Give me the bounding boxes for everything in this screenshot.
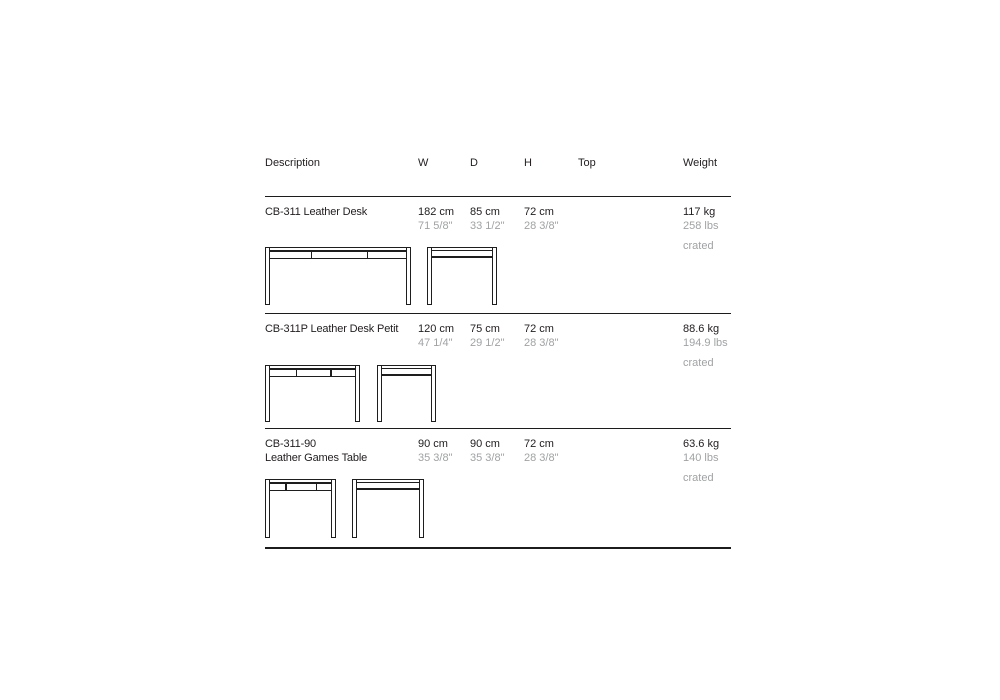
- apron-outline: [269, 250, 407, 259]
- product-name: CB-311P Leather Desk Petit: [265, 322, 398, 336]
- apron-outline: [269, 368, 356, 377]
- weight-kg-value: 88.6 kg: [683, 322, 719, 336]
- height-cm-value: 72 cm: [524, 205, 554, 219]
- height-in-value: 28 3/8": [524, 219, 559, 233]
- tabletop-outline: [352, 479, 424, 483]
- product-name-line2: Leather Games Table: [265, 451, 367, 465]
- shipping-label: crated: [683, 471, 714, 485]
- header-top: Top: [578, 156, 596, 170]
- height-cm-value: 72 cm: [524, 322, 554, 336]
- header-width: W: [418, 156, 428, 170]
- height-cm-value: 72 cm: [524, 437, 554, 451]
- table-row: CB-311P Leather Desk Petit 120 cm 47 1/4…: [265, 313, 731, 428]
- product-name: CB-311 Leather Desk: [265, 205, 367, 219]
- width-in-value: 35 3/8": [418, 451, 453, 465]
- height-in-value: 28 3/8": [524, 451, 559, 465]
- weight-lbs-value: 258 lbs: [683, 219, 718, 233]
- front-view-drawing: [265, 365, 360, 422]
- shipping-label: crated: [683, 356, 714, 370]
- weight-kg-value: 117 kg: [683, 205, 715, 219]
- apron-rail-line: [381, 374, 432, 376]
- depth-in-value: 29 1/2": [470, 336, 505, 350]
- depth-cm-value: 85 cm: [470, 205, 500, 219]
- width-cm-value: 182 cm: [418, 205, 454, 219]
- width-in-value: 71 5/8": [418, 219, 453, 233]
- header-description: Description: [265, 156, 320, 170]
- apron-rail-line: [356, 488, 420, 490]
- side-view-drawing: [377, 365, 436, 422]
- shipping-label: crated: [683, 239, 714, 253]
- table-row: CB-311 Leather Desk 182 cm 71 5/8" 85 cm…: [265, 196, 731, 313]
- header-height: H: [524, 156, 532, 170]
- width-in-value: 47 1/4": [418, 336, 453, 350]
- depth-in-value: 35 3/8": [470, 451, 505, 465]
- drawer-divider: [367, 252, 369, 258]
- drawer-divider: [296, 370, 298, 376]
- side-view-drawing: [427, 247, 497, 305]
- product-spec-sheet: Description W D H Top Weight CB-311 Leat…: [0, 0, 1000, 700]
- apron-outline: [269, 482, 332, 491]
- width-cm-value: 90 cm: [418, 437, 448, 451]
- table-row: CB-311-90 Leather Games Table 90 cm 35 3…: [265, 428, 731, 547]
- table-header: Description W D H Top Weight: [265, 156, 731, 172]
- drawer-divider: [285, 484, 287, 490]
- front-view-drawing: [265, 479, 336, 538]
- product-name: CB-311-90: [265, 437, 316, 451]
- apron-rail-line: [431, 256, 493, 258]
- width-cm-value: 120 cm: [418, 322, 454, 336]
- drawer-divider: [316, 484, 318, 490]
- header-depth: D: [470, 156, 478, 170]
- tabletop-outline: [427, 247, 497, 251]
- weight-kg-value: 63.6 kg: [683, 437, 719, 451]
- side-view-drawing: [352, 479, 424, 538]
- weight-lbs-value: 194.9 lbs: [683, 336, 728, 350]
- depth-in-value: 33 1/2": [470, 219, 505, 233]
- tabletop-outline: [377, 365, 436, 369]
- drawer-divider: [311, 252, 313, 258]
- depth-cm-value: 75 cm: [470, 322, 500, 336]
- height-in-value: 28 3/8": [524, 336, 559, 350]
- depth-cm-value: 90 cm: [470, 437, 500, 451]
- table-bottom-rule: [265, 547, 731, 549]
- front-view-drawing: [265, 247, 411, 305]
- weight-lbs-value: 140 lbs: [683, 451, 718, 465]
- header-weight: Weight: [683, 156, 717, 170]
- drawer-divider: [330, 370, 332, 376]
